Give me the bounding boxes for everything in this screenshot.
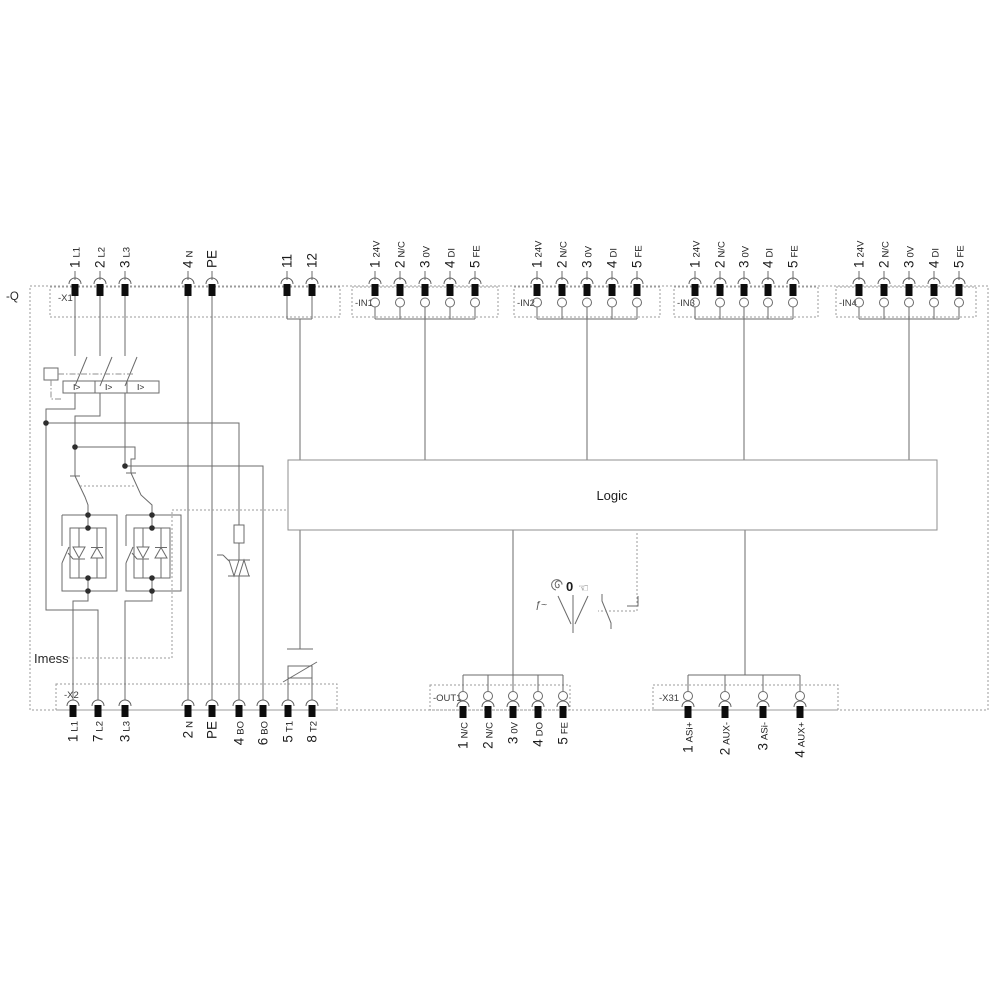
device-label: -Q bbox=[6, 291, 19, 303]
imess-label: Imess bbox=[34, 651, 69, 666]
x1-pin-pe-label: PE bbox=[205, 250, 220, 268]
overcurrent-label-3: I> bbox=[137, 382, 144, 392]
logic-block: Logic bbox=[288, 460, 937, 530]
out1-label: -OUT1 bbox=[433, 693, 462, 704]
x31-label: -X31 bbox=[659, 693, 679, 704]
overcurrent-label-2: I> bbox=[105, 382, 112, 392]
frequency-label: ƒ~ bbox=[535, 599, 547, 611]
wiring-diagram-page: -Q -X1 -IN1 -IN2 -IN3 -IN4 -X2 -OUT1 -X3… bbox=[0, 0, 1000, 1000]
overcurrent-label-1: I> bbox=[73, 382, 80, 392]
x1-pin-12-label: 12 bbox=[305, 253, 320, 268]
manual-mode-hand-icon: ☜ bbox=[578, 581, 589, 595]
x1-pin-11-label: 11 bbox=[280, 254, 295, 268]
logic-label: Logic bbox=[596, 488, 628, 503]
zero-position-label: 0 bbox=[566, 579, 573, 594]
x2-label: -X2 bbox=[64, 690, 79, 701]
x1-label: -X1 bbox=[58, 293, 73, 304]
in3-label: -IN3 bbox=[677, 298, 695, 309]
x2-pin-pe-label: PE bbox=[205, 721, 220, 739]
wiring-diagram: -Q -X1 -IN1 -IN2 -IN3 -IN4 -X2 -OUT1 -X3… bbox=[0, 0, 1000, 1000]
